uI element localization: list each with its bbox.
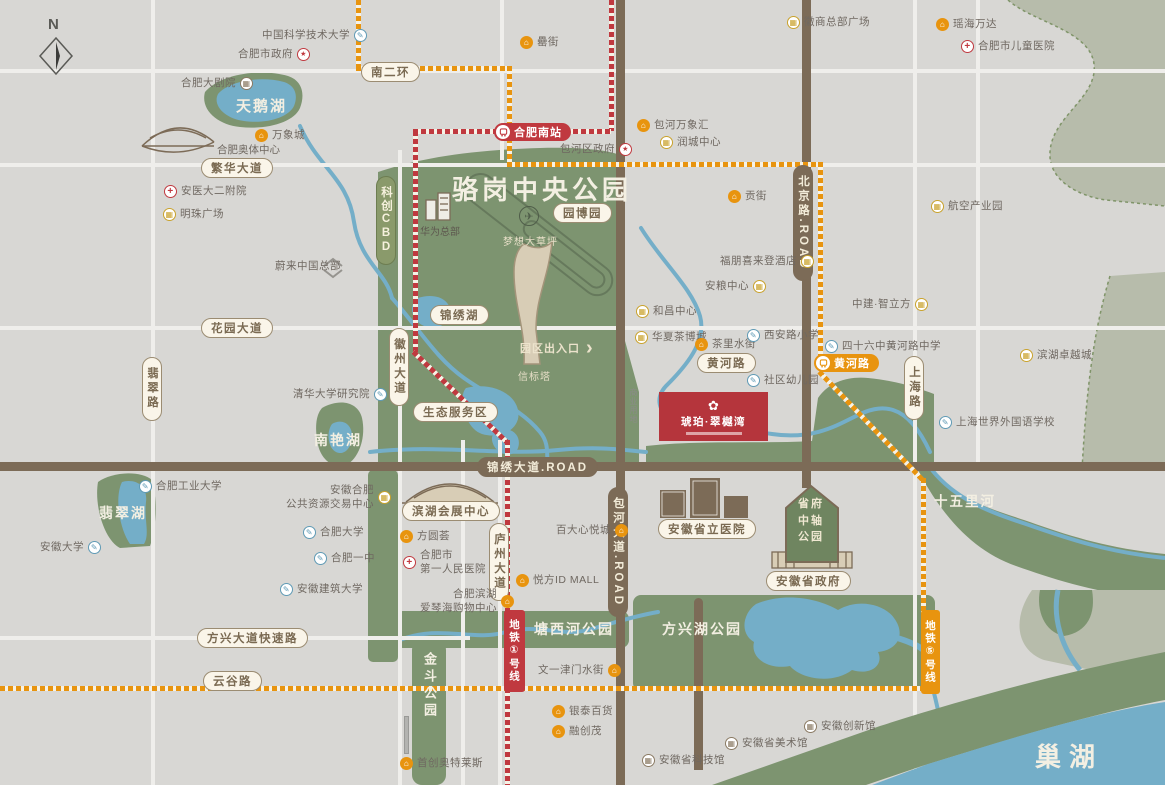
metro-line1-seg	[609, 0, 614, 131]
poi-mixc: ⌂万象城	[255, 129, 305, 143]
poi-first-people-hospital: +合肥市 第一人民医院	[403, 549, 486, 576]
poi-id-mall: ⌂悦方ID MALL	[516, 574, 599, 588]
metro-line1-seg	[413, 131, 418, 352]
area-label-beacon-tower: 信标塔	[518, 368, 551, 383]
road-label-fanhua: 繁华大道	[201, 158, 273, 178]
building-icon: ▦	[753, 280, 766, 293]
poi-runcheng-center: ▦润城中心	[660, 136, 721, 150]
school-icon: ✎	[280, 583, 293, 596]
poi-hefei-no1: ✎合肥一中	[314, 552, 375, 566]
museum-icon: ▦	[725, 737, 738, 750]
poi-children-hospital: +合肥市儿童医院	[961, 40, 1055, 54]
shop-icon: ⌂	[615, 524, 628, 537]
poi-wenyi-water-street: ⌂文一津门水街	[538, 664, 621, 678]
area-label-jinxiu-lake: 锦绣湖	[430, 305, 489, 325]
poi-label: 合肥市政府	[238, 48, 293, 62]
school-icon: ✎	[939, 416, 952, 429]
poi-hechang-center: ▦和昌中心	[636, 305, 697, 319]
nio-icon	[345, 260, 358, 273]
shop-icon: ⌂	[400, 757, 413, 770]
poi-label: 包河万象汇	[654, 119, 709, 133]
poi-fangyuanhui: ⌂方圆荟	[400, 530, 450, 544]
poi-label: 文一津门水街	[538, 664, 604, 678]
building-icon: ▦	[801, 255, 814, 268]
poi-label: 百大心悦城	[556, 524, 611, 538]
poi-innovation-museum: ▦安徽创新馆	[804, 720, 876, 734]
poi-rongchuangmao: ⌂融创茂	[552, 725, 602, 739]
poi-label: 蔚来中国总部	[275, 260, 341, 274]
building-icon: ▦	[931, 200, 944, 213]
road-label-shanghai: 上海路	[904, 356, 924, 420]
poi-label: 合肥滨湖 爱琴海购物中心	[420, 588, 497, 615]
poi-label: 安医大二附院	[181, 185, 247, 199]
poi-label: 安徽合肥 公共资源交易中心	[286, 484, 374, 511]
area-label-feicui-lake: 翡翠湖	[99, 503, 147, 523]
metro-station-huanghe: 黄河路	[814, 354, 879, 372]
poi-anjian-university: ✎安徽建筑大学	[280, 583, 363, 597]
school-icon: ✎	[825, 340, 838, 353]
poi-label: 中国科学技术大学	[262, 29, 350, 43]
train-icon	[816, 356, 830, 370]
metro-station-hefei-south: 合肥南站	[494, 123, 571, 141]
poi-label: 合肥大剧院	[181, 77, 236, 91]
poi-mingzhu-plaza: ▦明珠广场	[163, 208, 224, 222]
metro-station-label: 合肥南站	[514, 124, 562, 140]
hospital-cross-icon: +	[403, 556, 416, 569]
poi-label: 社区幼儿园	[764, 374, 819, 388]
poi-aegean-mall: ⌂合肥滨湖 爱琴海购物中心	[420, 588, 514, 615]
museum-icon: ▦	[240, 77, 253, 90]
poi-xianlu-primary: ✎西安路小学	[747, 329, 819, 343]
poi-label: 安徽建筑大学	[297, 583, 363, 597]
poi-binhu-zhuoyue: ▦滨湖卓越城	[1020, 349, 1092, 363]
area-label-nanyan-lake: 南艳湖	[314, 430, 362, 450]
metro-line5-seg	[0, 686, 925, 691]
museum-icon: ▦	[642, 754, 655, 767]
poi-zhongjian-cube: ▦中建·智立方	[852, 298, 928, 312]
area-label-swan-lake: 天鹅湖	[236, 95, 287, 116]
school-icon: ✎	[314, 552, 327, 565]
area-label-tangxihe-park: 塘西河公园	[534, 619, 614, 639]
poi-gongjie: ⌂贡街	[728, 190, 767, 204]
project-block: ✿ 琥珀·翠樾湾	[659, 392, 768, 441]
area-label-central-park: 骆岗中央公园	[452, 170, 632, 207]
landmark-label-expo-center: 滨湖会展中心	[402, 501, 500, 521]
school-icon: ✎	[303, 526, 316, 539]
gov-star-icon: ★	[297, 48, 310, 61]
shop-icon: ⌂	[520, 36, 533, 49]
school-icon: ✎	[88, 541, 101, 554]
poi-grand-theatre: ▦合肥大剧院	[181, 77, 253, 91]
poi-label: 瑶海万达	[953, 18, 997, 32]
road-label-huanghe: 黄河路	[697, 353, 756, 373]
poi-label: 合肥大学	[320, 526, 364, 540]
school-icon: ✎	[747, 374, 760, 387]
poi-label: 首创奥特莱斯	[417, 757, 483, 771]
road-label-huizhou: 徽州大道	[389, 328, 409, 406]
poi-outlets: ⌂首创奥特莱斯	[400, 757, 483, 771]
gov-star-icon: ★	[619, 143, 632, 156]
shop-icon: ⌂	[255, 129, 268, 142]
shop-icon: ⌂	[695, 338, 708, 351]
area-label-chaohu: 巢湖	[1035, 737, 1103, 774]
road-label-yungu: 云谷路	[203, 671, 262, 691]
poi-label: 合肥市 第一人民医院	[420, 549, 486, 576]
road-label-nanerhuan: 南二环	[361, 62, 420, 82]
poi-label: 银泰百货	[569, 705, 613, 719]
poi-label: 西安路小学	[764, 329, 819, 343]
area-label-dream-lawn: 梦想大草坪	[503, 233, 558, 248]
road-label-fangxing: 方兴大道快速路	[197, 628, 308, 648]
poi-hefei-university: ✎合肥大学	[303, 526, 364, 540]
road-label-jinxiu-artery: 锦绣大道.ROAD	[477, 457, 598, 477]
school-icon: ✎	[139, 480, 152, 493]
road-label-huayuan: 花园大道	[201, 318, 273, 338]
metro-line5-seg	[507, 66, 512, 164]
poi-city-gov: ★合肥市政府	[238, 48, 310, 62]
poi-science-museum: ▦安徽省科技馆	[642, 754, 725, 768]
poi-label: 安徽大学	[40, 541, 84, 555]
landmark-label-provincial-hospital: 安徽省立医院	[658, 519, 756, 539]
park-gate-text: 园区出入口	[520, 340, 580, 356]
poi-label: 滨湖卓越城	[1037, 349, 1092, 363]
poi-label: 明珠广场	[180, 208, 224, 222]
building-icon: ▦	[915, 298, 928, 311]
poi-label: 清华大学研究院	[293, 388, 370, 402]
building-icon: ▦	[163, 208, 176, 221]
poi-label: 和昌中心	[653, 305, 697, 319]
poi-shanghai-foreign-school: ✎上海世界外国语学校	[939, 416, 1055, 430]
compass-n-label: N	[48, 16, 59, 33]
poi-label: 合肥一中	[331, 552, 375, 566]
poi-nio-hq: 蔚来中国总部	[275, 260, 358, 274]
metro-line5-badge: 地铁⑤号线	[921, 610, 940, 694]
building-icon: ▦	[787, 16, 800, 29]
map-canvas: 南二环 繁华大道 花园大道 翡翠路 徽州大道 庐州大道 上海路 方兴大道快速路 …	[0, 0, 1165, 785]
poi-huishang-plaza: ▦徽商总部广场	[787, 16, 870, 30]
road-label-feicui: 翡翠路	[142, 357, 162, 421]
poi-ustc: ✎中国科学技术大学	[262, 29, 367, 43]
area-label-kechuang-cbd: 科创CBD	[376, 176, 396, 265]
poi-baohe-mixc: ⌂包河万象汇	[637, 119, 709, 133]
poi-baohe-gov: ★包河区政府	[560, 143, 632, 157]
landmark-label-huawei: 华为总部	[420, 223, 460, 238]
metro-line1-badge: 地铁①号线	[504, 610, 525, 692]
poi-label: 安徽省美术馆	[742, 737, 808, 751]
metro-station-label: 黄河路	[834, 355, 870, 371]
hospital-cross-icon: +	[961, 40, 974, 53]
poi-sheraton: ▦福朋喜来登酒店	[720, 255, 814, 269]
landmark-label-aoti: 合肥奥体中心	[217, 142, 280, 157]
shop-icon: ⌂	[501, 595, 514, 608]
area-label-eco-zone: 生态服务区	[413, 402, 498, 422]
poi-label: 融创茂	[569, 725, 602, 739]
plane-icon: ✈	[519, 206, 539, 226]
poi-label: 合肥工业大学	[156, 480, 222, 494]
park-gate-label: 园区出入口 ›	[520, 340, 593, 356]
poi-kindergarten: ✎社区幼儿园	[747, 374, 819, 388]
poi-label: 安徽创新馆	[821, 720, 876, 734]
building-icon: ▦	[378, 491, 391, 504]
school-icon: ✎	[354, 29, 367, 42]
shop-icon: ⌂	[516, 574, 529, 587]
poi-yintai: ⌂银泰百货	[552, 705, 613, 719]
poi-label: 贡街	[745, 190, 767, 204]
poi-label: 罍街	[537, 36, 559, 50]
building-icon: ▦	[635, 331, 648, 344]
shop-icon: ⌂	[400, 530, 413, 543]
poi-label: 合肥市儿童医院	[978, 40, 1055, 54]
poi-label: 上海世界外国语学校	[956, 416, 1055, 430]
building-icon: ▦	[636, 305, 649, 318]
road-label-baohe-artery: 包河大道.ROAD	[608, 487, 628, 617]
poi-anhui-university: ✎安徽大学	[40, 541, 101, 555]
poi-baida-xinyuecheng: ⌂百大心悦城	[556, 524, 628, 538]
building-icon: ▦	[660, 136, 673, 149]
poi-label: 悦方ID MALL	[533, 574, 599, 588]
shop-icon: ⌂	[637, 119, 650, 132]
building-icon: ▦	[1020, 349, 1033, 362]
flower-icon: ✿	[708, 399, 719, 412]
poi-label: 徽商总部广场	[804, 16, 870, 30]
school-icon: ✎	[747, 329, 760, 342]
poi-hfut: ✎合肥工业大学	[139, 480, 222, 494]
poi-yaohai-wanda: ⌂瑶海万达	[936, 18, 997, 32]
landmark-label-gov: 安徽省政府	[766, 571, 851, 591]
hospital-cross-icon: +	[164, 185, 177, 198]
poi-anliang-center: ▦安粮中心	[705, 280, 766, 294]
poi-label: 方圆荟	[417, 530, 450, 544]
area-label-fangxinghu-park: 方兴湖公园	[662, 619, 742, 639]
compass-icon	[34, 34, 78, 78]
poi-label: 安徽省科技馆	[659, 754, 725, 768]
area-label-jindou-park: 金斗公园	[420, 652, 439, 720]
shop-icon: ⌂	[728, 190, 741, 203]
shop-icon: ⌂	[936, 18, 949, 31]
chevron-right-icon: ›	[586, 340, 593, 356]
train-icon	[496, 125, 510, 139]
poi-art-museum: ▦安徽省美术馆	[725, 737, 808, 751]
poi-anyi-hospital: +安医大二附院	[164, 185, 247, 199]
poi-label: 中建·智立方	[852, 298, 911, 312]
project-tagline	[686, 432, 742, 435]
poi-label: 福朋喜来登酒店	[720, 255, 797, 269]
legend-scale-bar	[404, 716, 409, 754]
poi-tsinghua-institute: ✎清华大学研究院	[293, 388, 387, 402]
shop-icon: ⌂	[552, 705, 565, 718]
poi-label: 航空产业园	[948, 200, 1003, 214]
area-label-shiwuli-river: 十五里河	[934, 490, 996, 510]
museum-icon: ▦	[804, 720, 817, 733]
area-label-commercial-land: 商业用地	[628, 388, 639, 424]
poi-leijie: ⌂罍街	[520, 36, 559, 50]
poi-resource-trade-center: ▦安徽合肥 公共资源交易中心	[286, 484, 391, 511]
poi-label: 润城中心	[677, 136, 721, 150]
area-label-axis-park: 省府中轴公园	[796, 496, 826, 546]
school-icon: ✎	[374, 388, 387, 401]
poi-aviation-park: ▦航空产业园	[931, 200, 1003, 214]
poi-label: 安粮中心	[705, 280, 749, 294]
poi-label: 包河区政府	[560, 143, 615, 157]
poi-label: 万象城	[272, 129, 305, 143]
metro-line5-seg	[507, 162, 822, 167]
poi-no46-middle: ✎四十六中黄河路中学	[825, 340, 941, 354]
shop-icon: ⌂	[608, 664, 621, 677]
shop-icon: ⌂	[552, 725, 565, 738]
project-name: 琥珀·翠樾湾	[681, 414, 746, 429]
poi-label: 四十六中黄河路中学	[842, 340, 941, 354]
